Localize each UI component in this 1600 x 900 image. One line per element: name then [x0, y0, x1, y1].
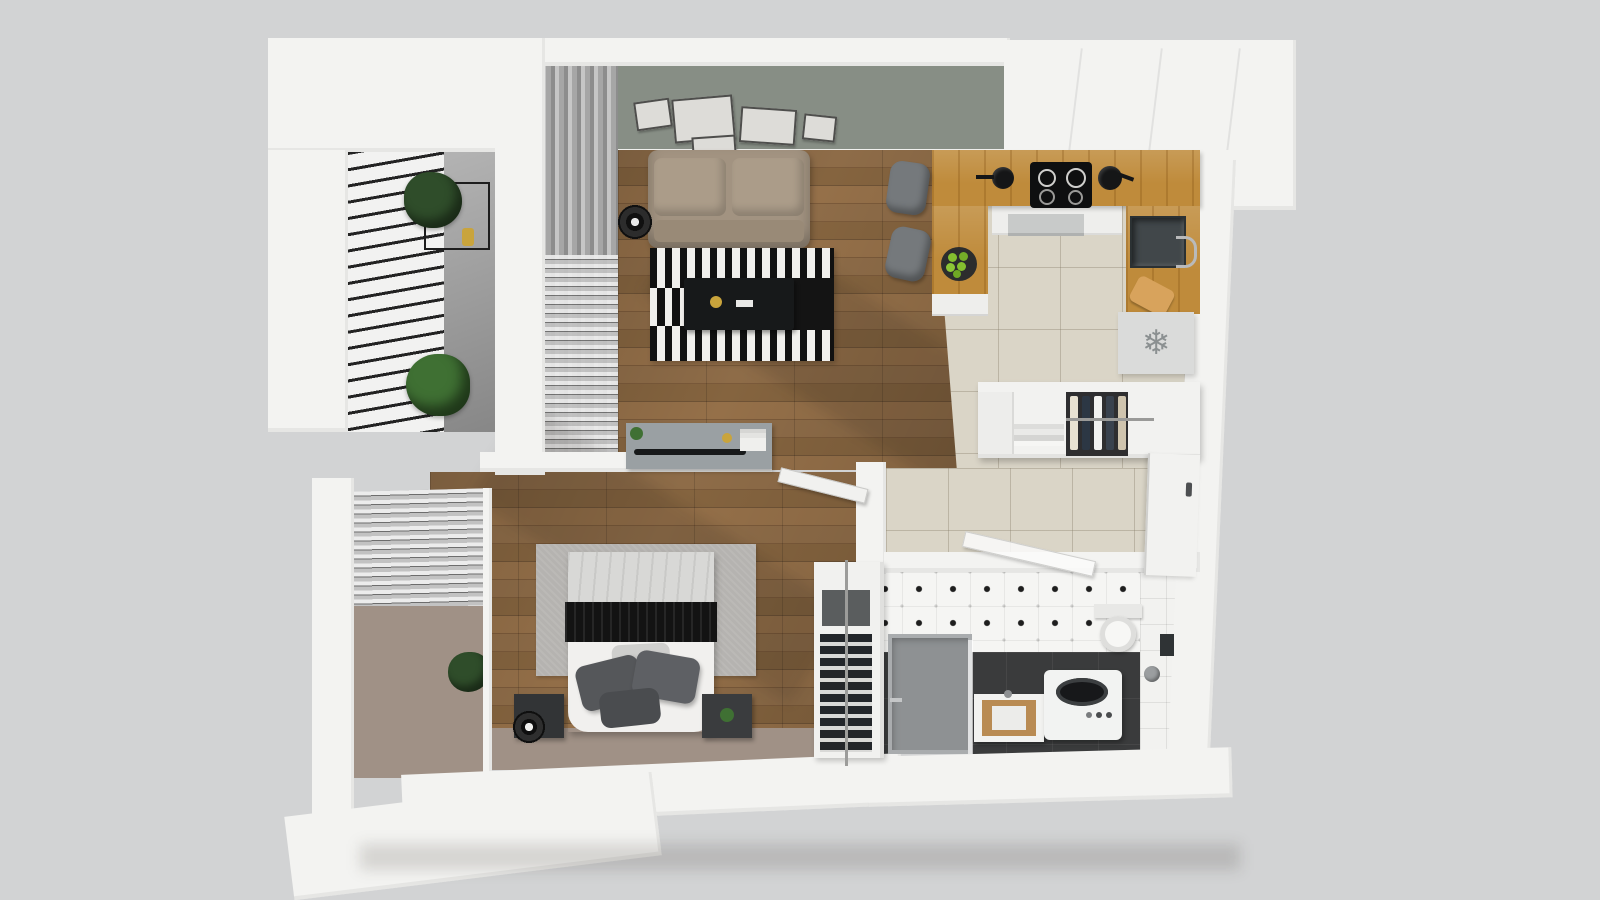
shower-glass [968, 640, 973, 754]
bedroom-window-wall [352, 606, 487, 778]
wardrobe-open-section [1066, 392, 1128, 456]
clock [722, 433, 732, 443]
area-rug [650, 248, 834, 361]
clothes-hanger [1094, 396, 1102, 450]
range-hood [1008, 214, 1084, 236]
outer-wall-bathroom-south [867, 747, 1232, 807]
bed [568, 552, 714, 732]
potted-plant-icon [406, 354, 470, 416]
duvet [568, 552, 714, 602]
folded-clothes [1014, 424, 1064, 446]
door-jamb [856, 462, 886, 574]
tv [634, 449, 746, 455]
potted-plant-icon [720, 708, 734, 722]
toilet [1094, 604, 1142, 656]
washing-machine [1044, 670, 1122, 740]
cabinet-face [932, 294, 988, 316]
throw-blanket [565, 602, 717, 642]
potted-plant-icon [630, 427, 643, 440]
shower-tray [888, 634, 972, 754]
outer-wall-left [268, 150, 348, 432]
snowflake-icon: ❄ [1118, 312, 1194, 374]
notebook [736, 300, 753, 307]
wardrobe [978, 382, 1200, 458]
books [740, 429, 766, 451]
building-shadow [360, 844, 1240, 870]
wall-art-frame [633, 98, 673, 132]
wall-art-frame [802, 113, 838, 142]
outer-wall-left-lower [312, 478, 354, 854]
faucet-icon [1176, 236, 1197, 268]
cooking-pot [992, 167, 1014, 189]
decor-bowl [710, 296, 722, 308]
hanger-rail [1066, 418, 1154, 421]
bedroom-window-blinds [350, 488, 488, 609]
cooking-pot [1098, 166, 1122, 190]
cabinet-pole [845, 560, 848, 766]
faucet-icon [1004, 690, 1012, 698]
coffee-table [684, 278, 794, 330]
clothes-hanger [1070, 396, 1078, 450]
apartment-render: ❄ [0, 0, 1600, 900]
sofa [648, 150, 810, 248]
bar-stool [885, 159, 932, 216]
bedside-table [702, 694, 752, 738]
fruit-bowl [941, 247, 977, 281]
kitchen-upper-cabinets [1004, 40, 1296, 164]
cooktop [1030, 162, 1092, 208]
bedroom-window-frame [483, 488, 492, 776]
outer-wall-top [545, 38, 1010, 66]
desk-fan-icon [512, 710, 546, 744]
tv-console [626, 423, 772, 469]
washer-lid [1056, 678, 1108, 706]
pot-handle [976, 175, 994, 179]
pillow [598, 687, 661, 729]
wall-balcony-living [495, 38, 545, 475]
door-handle-icon [1186, 482, 1192, 496]
refrigerator: ❄ [1118, 312, 1194, 374]
clothes-hanger [1118, 396, 1126, 450]
trash-bin [1144, 666, 1160, 682]
entry-door [1144, 453, 1200, 577]
clothes-hanger [1082, 396, 1090, 450]
toilet-paper-holder [1160, 634, 1174, 656]
vanity-sink [974, 694, 1044, 742]
potted-plant-icon [404, 172, 462, 228]
clothes-hanger [1106, 396, 1114, 450]
shower-faucet-icon [890, 698, 902, 702]
wall-art-frame [739, 106, 797, 146]
wardrobe-door [978, 392, 1014, 454]
pendant-lamp-icon [614, 201, 656, 243]
watering-can [462, 228, 474, 246]
